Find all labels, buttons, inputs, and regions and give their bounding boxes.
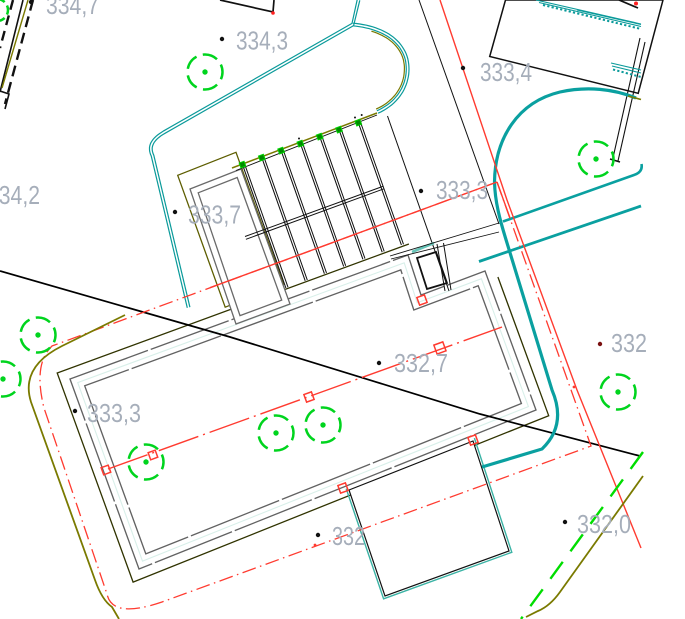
svg-text:334,2: 334,2 <box>0 182 40 210</box>
svg-text:332,0: 332,0 <box>577 511 631 539</box>
svg-text:334,7: 334,7 <box>46 0 99 20</box>
svg-text:332: 332 <box>332 523 365 551</box>
svg-text:332: 332 <box>611 330 647 358</box>
svg-text:333,3: 333,3 <box>87 400 141 428</box>
svg-text:332,7: 332,7 <box>394 350 448 378</box>
svg-text:334,3: 334,3 <box>236 28 288 56</box>
svg-text:333,4: 333,4 <box>480 59 532 87</box>
svg-text:333,3: 333,3 <box>436 177 488 205</box>
svg-text:333,7: 333,7 <box>188 202 241 230</box>
